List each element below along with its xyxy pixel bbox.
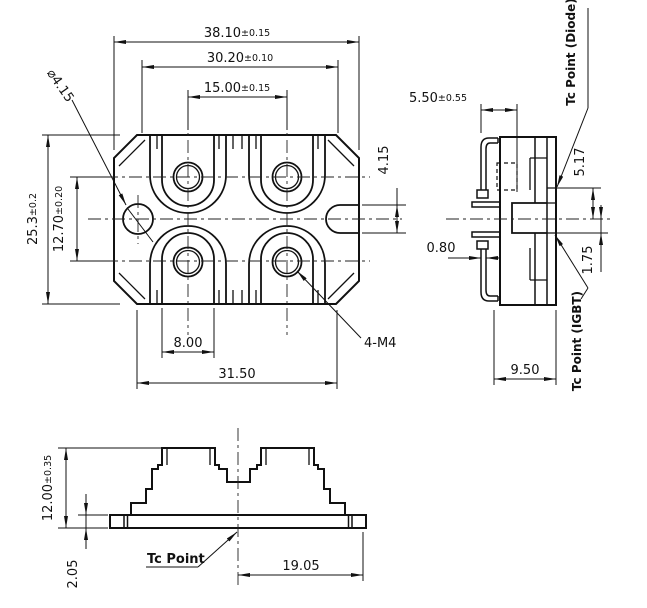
technical-drawing-page: 38.10±0.15 30.20±0.10 15.00±0.15 25.3±0.… [0,0,647,608]
dim-mount-hole-span: 31.50 [218,367,255,382]
tc-point-diode-label: Tc Point (Diode) [564,0,578,106]
terminal-hook-foot [477,190,488,198]
tc-point-label: Tc Point [147,552,205,567]
corner-chamfer-lines [119,140,354,299]
front-view-dimensions: 12.00±0.35 2.05 19.05 Tc Point [41,448,363,588]
tc-point-igbt-label: Tc Point (IGBT) [570,291,584,391]
dim-terminal-offset: 5.50±0.55 [409,91,467,106]
terminal-hook [481,249,498,301]
edge-step-ticks [157,135,318,304]
dim-tc-igbt-offset: 1.75 [581,246,596,275]
mounting-boss [512,203,547,233]
top-view-dimensions: 38.10±0.15 30.20±0.10 15.00±0.15 25.3±0.… [26,26,406,389]
dim-body-depth: 9.50 [511,363,540,378]
dim-terminal-thickness: 0.80 [427,241,456,256]
dim-mount-hole-diameter: ⌀4.15 [43,67,76,106]
side-view-dimensions: 5.50±0.55 0.80 5.17 1.75 9.50 Tc Point (… [409,0,608,391]
terminal-plate [472,202,500,237]
dim-baseplate-thickness: 2.05 [66,560,81,589]
centerlines [88,92,402,335]
dim-terminal-row-pitch: 12.70±0.20 [52,186,67,252]
dim-overall-width: 38.10±0.15 [204,26,270,41]
label-screw-thread: 4-M4 [364,336,396,351]
dim-tc-diode-offset: 5.17 [573,148,588,177]
dim-terminal-pitch: 15.00±0.15 [204,81,270,96]
dim-tc-offset: 19.05 [282,559,319,574]
package-outline-drawing: 38.10±0.15 30.20±0.10 15.00±0.15 25.3±0.… [0,0,647,608]
dim-substrate-width: 30.20±0.10 [207,51,273,66]
top-view [88,92,402,335]
terminal-hook [481,138,498,190]
dim-overall-height: 12.00±0.35 [41,455,56,521]
dim-mount-slot-width: 4.15 [377,146,392,175]
terminal-hook-foot [477,241,488,249]
dim-overall-depth: 25.3±0.2 [26,193,41,245]
dim-pocket-width: 8.00 [174,336,203,351]
